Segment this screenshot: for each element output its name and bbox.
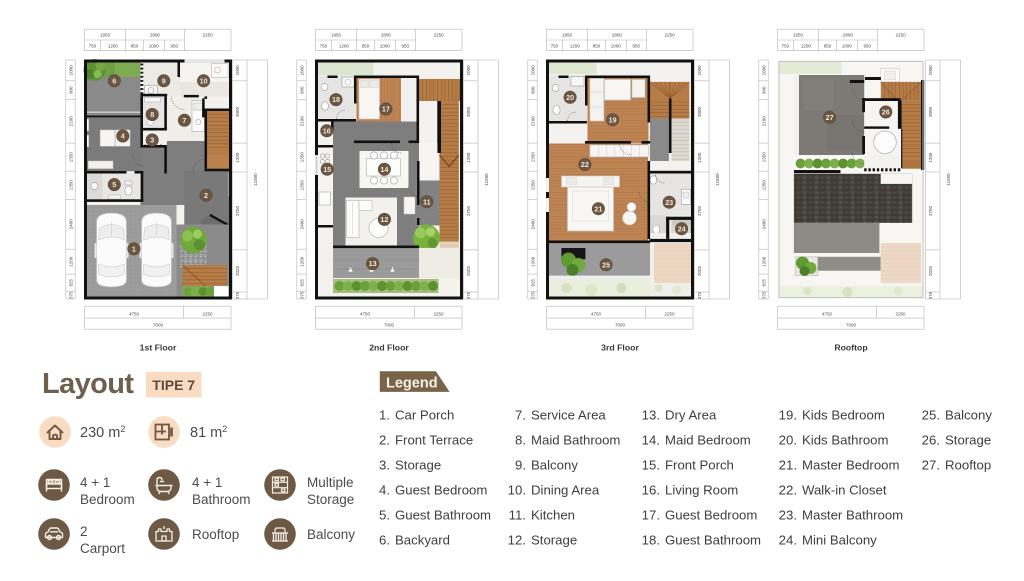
svg-text:Master Bathroom: Master Bathroom	[802, 508, 903, 523]
svg-text:Kitchen: Kitchen	[531, 508, 575, 523]
svg-text:Service Area: Service Area	[531, 408, 606, 423]
svg-text:9.: 9.	[515, 458, 526, 473]
svg-text:Dining Area: Dining Area	[531, 483, 600, 498]
svg-text:20: 20	[566, 93, 574, 102]
svg-text:Storage: Storage	[395, 458, 441, 473]
svg-text:25: 25	[602, 260, 610, 269]
svg-text:9: 9	[162, 76, 166, 85]
svg-text:2.: 2.	[379, 433, 390, 448]
svg-text:16: 16	[323, 126, 331, 135]
svg-text:Dry Area: Dry Area	[665, 408, 717, 423]
svg-text:Storage: Storage	[945, 433, 991, 448]
svg-text:13: 13	[369, 259, 377, 268]
svg-text:230 m2: 230 m2	[80, 424, 125, 441]
svg-text:24: 24	[678, 224, 686, 233]
svg-text:7: 7	[182, 116, 186, 125]
svg-text:13.: 13.	[642, 408, 660, 423]
svg-text:TIPE 7: TIPE 7	[152, 377, 195, 393]
svg-text:20.: 20.	[779, 433, 797, 448]
svg-text:Guest Bathroom: Guest Bathroom	[665, 533, 761, 548]
svg-text:19.: 19.	[779, 408, 797, 423]
svg-text:4: 4	[121, 132, 125, 141]
svg-text:Balcony: Balcony	[307, 527, 355, 542]
svg-text:26.: 26.	[922, 433, 940, 448]
svg-text:27.: 27.	[922, 458, 940, 473]
svg-text:Multiple: Multiple	[307, 475, 354, 490]
svg-text:27: 27	[826, 113, 834, 122]
svg-text:Balcony: Balcony	[531, 458, 578, 473]
svg-text:5.: 5.	[379, 508, 390, 523]
svg-text:Master Bedroom: Master Bedroom	[802, 458, 899, 473]
svg-text:Maid Bedroom: Maid Bedroom	[665, 433, 751, 448]
svg-text:Walk-in Closet: Walk-in Closet	[802, 483, 887, 498]
svg-text:Guest Bathroom: Guest Bathroom	[395, 508, 491, 523]
svg-text:Kids Bedroom: Kids Bedroom	[802, 408, 885, 423]
svg-text:14: 14	[380, 165, 388, 174]
svg-text:Guest Bedroom: Guest Bedroom	[665, 508, 757, 523]
svg-text:1: 1	[132, 245, 136, 254]
svg-text:Storage: Storage	[531, 533, 577, 548]
svg-text:1.: 1.	[379, 408, 390, 423]
svg-text:10: 10	[200, 76, 208, 85]
svg-text:Bathroom: Bathroom	[192, 492, 251, 507]
svg-text:6.: 6.	[379, 533, 390, 548]
svg-text:8: 8	[150, 110, 154, 119]
svg-text:Rooftop: Rooftop	[192, 527, 239, 542]
svg-text:15.: 15.	[642, 458, 660, 473]
svg-text:11.: 11.	[509, 508, 526, 523]
svg-text:15: 15	[323, 165, 331, 174]
svg-text:Living Room: Living Room	[665, 483, 738, 498]
svg-text:17.: 17.	[642, 508, 660, 523]
svg-text:22.: 22.	[779, 483, 797, 498]
svg-text:12.: 12.	[508, 533, 526, 548]
svg-text:81 m2: 81 m2	[190, 424, 227, 441]
svg-text:16.: 16.	[642, 483, 660, 498]
svg-text:12: 12	[380, 215, 388, 224]
svg-text:1st Floor: 1st Floor	[140, 343, 177, 353]
svg-text:Guest Bedroom: Guest Bedroom	[395, 483, 487, 498]
svg-text:8.: 8.	[515, 433, 526, 448]
svg-text:3.: 3.	[379, 458, 390, 473]
svg-text:2nd Floor: 2nd Floor	[369, 343, 409, 353]
svg-text:5: 5	[112, 180, 116, 189]
svg-text:Front Terrace: Front Terrace	[395, 433, 473, 448]
svg-text:7.: 7.	[515, 408, 526, 423]
svg-text:Rooftop: Rooftop	[945, 458, 991, 473]
svg-text:Balcony: Balcony	[945, 408, 992, 423]
svg-text:11: 11	[423, 197, 431, 206]
svg-text:21: 21	[594, 204, 602, 213]
svg-text:Rooftop: Rooftop	[834, 343, 867, 353]
svg-text:Backyard: Backyard	[395, 533, 450, 548]
svg-text:23.: 23.	[779, 508, 797, 523]
svg-text:18: 18	[332, 95, 340, 104]
svg-text:2: 2	[204, 191, 208, 200]
svg-text:4 + 1: 4 + 1	[192, 475, 222, 490]
svg-text:21.: 21.	[779, 458, 797, 473]
svg-text:2: 2	[80, 524, 88, 539]
svg-text:17: 17	[382, 105, 390, 114]
svg-text:Layout: Layout	[42, 368, 134, 400]
svg-text:4.: 4.	[379, 483, 390, 498]
svg-text:14.: 14.	[642, 433, 660, 448]
svg-text:Front Porch: Front Porch	[665, 458, 734, 473]
svg-text:22: 22	[581, 160, 589, 169]
svg-text:Kids Bathroom: Kids Bathroom	[802, 433, 889, 448]
svg-text:19: 19	[609, 115, 617, 124]
svg-text:3: 3	[150, 136, 154, 145]
svg-text:23: 23	[665, 198, 673, 207]
svg-text:Storage: Storage	[307, 492, 354, 507]
svg-text:10.: 10.	[508, 483, 526, 498]
svg-text:6: 6	[112, 76, 116, 85]
svg-text:Mini Balcony: Mini Balcony	[802, 533, 877, 548]
svg-text:Legend: Legend	[386, 376, 438, 392]
svg-text:25.: 25.	[922, 408, 940, 423]
svg-text:24.: 24.	[779, 533, 797, 548]
svg-text:Bedroom: Bedroom	[80, 492, 135, 507]
svg-text:Car Porch: Car Porch	[395, 408, 454, 423]
svg-text:4 + 1: 4 + 1	[80, 475, 110, 490]
svg-text:26: 26	[882, 108, 890, 117]
svg-text:Carport: Carport	[80, 541, 125, 556]
svg-text:3rd Floor: 3rd Floor	[601, 343, 639, 353]
svg-text:Maid Bathroom: Maid Bathroom	[531, 433, 620, 448]
svg-text:18.: 18.	[642, 533, 660, 548]
